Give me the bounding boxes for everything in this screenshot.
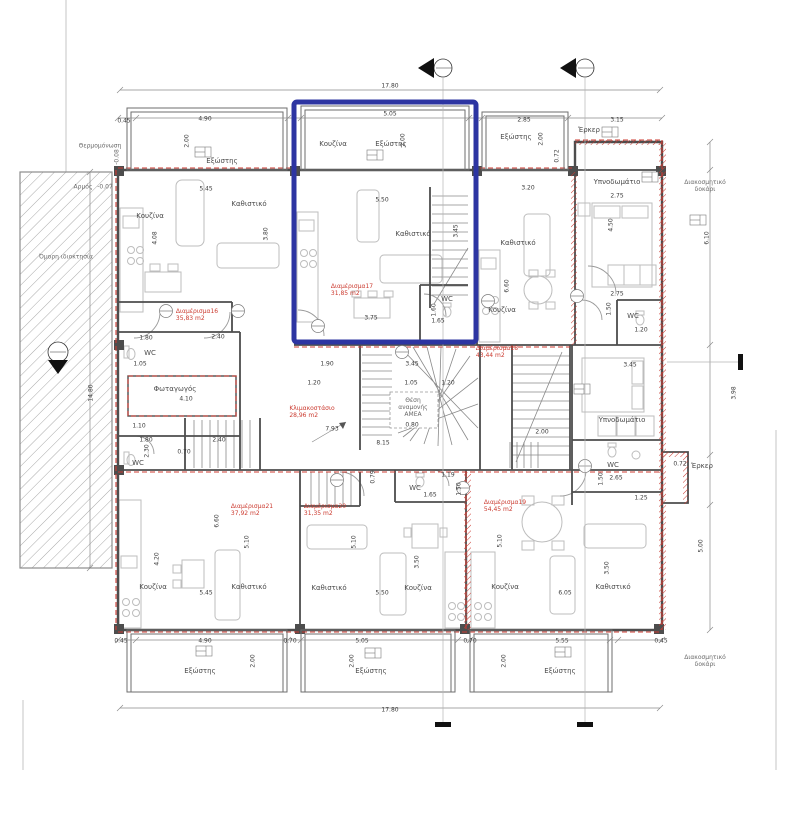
amea-waiting-platform: [390, 392, 438, 428]
title-block: 1 Κάτοψη Γ΄Ορόφου 1 : 50: [0, 770, 800, 815]
section-end-bar: [577, 722, 593, 727]
section-marker-top-1: [418, 58, 452, 78]
section-end-bar: [435, 722, 451, 727]
floor-plan-drawing: [0, 0, 800, 815]
floor-plan-sheet: ΕξώστηςΚουζίναΕξώστηςΕξώστηςΈρκερΚουζίνα…: [0, 0, 800, 815]
adjacent-property-hatch: [20, 172, 112, 568]
section-end-bar: [738, 354, 743, 370]
section-marker-top-2: [560, 58, 594, 78]
